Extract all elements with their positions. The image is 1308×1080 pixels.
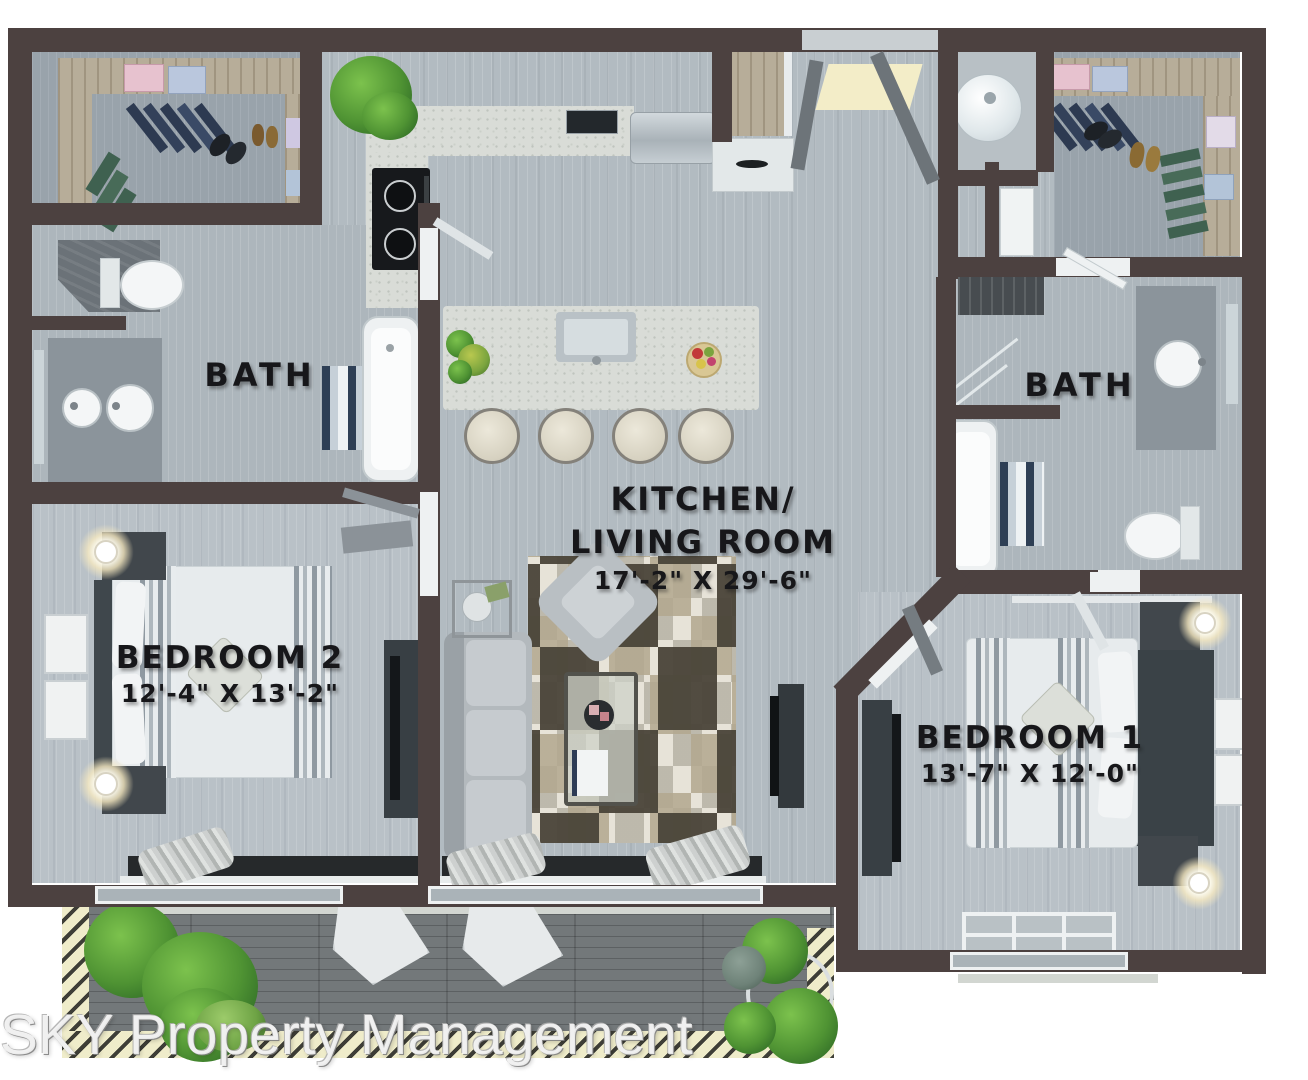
wall xyxy=(8,28,1266,52)
lamp-shade xyxy=(1194,612,1216,634)
kitchen-living-label-line1: KITCHEN/ xyxy=(553,478,853,521)
door-opening xyxy=(420,492,438,596)
toilet xyxy=(120,260,184,310)
shower-bench xyxy=(958,275,1044,315)
window xyxy=(950,952,1128,970)
wall xyxy=(8,28,32,907)
bath-right-label: BATH xyxy=(1000,366,1160,404)
stove-burner xyxy=(384,180,416,212)
kitchen-living-label: KITCHEN/ LIVING ROOM 17'-2" X 29'-6" xyxy=(553,478,853,598)
island-sink-basin xyxy=(564,319,628,355)
faucet xyxy=(1198,358,1206,366)
bath-left-label: BATH xyxy=(180,356,340,394)
faucet xyxy=(112,402,120,410)
wall xyxy=(936,277,956,577)
pantry-shelf-edge xyxy=(784,46,792,136)
shoes xyxy=(266,126,278,148)
faucet xyxy=(592,356,601,365)
tv-console xyxy=(778,684,804,808)
towel xyxy=(1000,462,1044,546)
storage-box xyxy=(168,66,206,94)
mirror xyxy=(1226,304,1238,404)
wall xyxy=(712,28,732,142)
drain xyxy=(386,344,394,352)
kitchen-living-label-line2: LIVING ROOM xyxy=(553,521,853,564)
fruit xyxy=(692,348,703,359)
window-ledge xyxy=(958,974,1158,983)
window-pane xyxy=(1016,916,1062,933)
storage-box xyxy=(1206,116,1236,148)
pantry-shelf xyxy=(724,46,784,136)
gray-plant xyxy=(722,946,766,990)
cabinet-handle xyxy=(736,160,768,168)
storage-box xyxy=(1092,66,1128,92)
bar-stool xyxy=(678,408,734,464)
range-hood xyxy=(566,110,618,134)
wall xyxy=(950,405,1060,419)
mirror xyxy=(34,350,44,464)
lamp-shade xyxy=(94,772,118,796)
bedroom2-label: BEDROOM 2 12'-4" X 13'-2" xyxy=(80,638,380,711)
bar-stool xyxy=(538,408,594,464)
fruit xyxy=(707,357,716,366)
tray-item xyxy=(589,705,599,715)
bedroom1-label: BEDROOM 1 13'-7" X 12'-0" xyxy=(880,718,1180,791)
tray-item xyxy=(600,712,609,721)
lamp-shade xyxy=(94,540,118,564)
bedroom1-name: BEDROOM 1 xyxy=(880,718,1180,758)
sink xyxy=(62,388,102,428)
hanging-plant xyxy=(724,1002,776,1054)
toilet-tank xyxy=(100,258,120,308)
wall xyxy=(1036,28,1054,172)
book xyxy=(572,750,608,796)
bedroom1-dims: 13'-7" X 12'-0" xyxy=(880,758,1180,791)
wall xyxy=(300,28,322,225)
bar-stool xyxy=(612,408,668,464)
sofa-cushion xyxy=(466,710,526,776)
potted-plant xyxy=(362,92,418,140)
wall xyxy=(1242,28,1266,974)
door-opening xyxy=(802,30,938,50)
door-opening xyxy=(420,228,438,300)
wall xyxy=(8,316,126,330)
tv-screen xyxy=(770,696,779,796)
sofa-back xyxy=(444,632,464,860)
wall xyxy=(938,28,958,279)
floor-plan: BATH BATH KITCHEN/ LIVING ROOM 17'-2" X … xyxy=(0,0,1308,1080)
door-opening xyxy=(1098,570,1140,592)
watermark: SKY Property Management xyxy=(0,1002,693,1068)
bedroom2-dims: 12'-4" X 13'-2" xyxy=(80,678,380,711)
stove-burner xyxy=(384,228,416,260)
fruit xyxy=(704,347,714,357)
sink xyxy=(1154,340,1202,388)
window xyxy=(428,886,763,904)
toilet-tank xyxy=(1180,506,1200,560)
storage-box xyxy=(1052,64,1090,90)
door xyxy=(1000,188,1034,256)
window-pane xyxy=(1066,916,1112,933)
bedroom2-name: BEDROOM 2 xyxy=(80,638,380,678)
storage-box xyxy=(1204,174,1234,200)
water-heater xyxy=(954,74,1022,142)
fruit xyxy=(696,359,706,369)
toilet xyxy=(1124,512,1186,560)
door-mat xyxy=(815,64,922,110)
storage-box xyxy=(124,64,164,92)
kitchen-living-dims: 17'-2" X 29'-6" xyxy=(553,564,853,598)
water-heater-valve xyxy=(984,92,996,104)
sofa-cushion xyxy=(466,640,526,706)
refrigerator xyxy=(630,112,716,164)
bathtub-basin xyxy=(952,432,990,566)
wall xyxy=(8,203,322,225)
wall xyxy=(985,162,999,273)
counter-plant xyxy=(448,360,472,384)
wall xyxy=(836,688,858,907)
bar-stool xyxy=(464,408,520,464)
window xyxy=(95,886,343,904)
shoes xyxy=(252,124,264,146)
window-pane xyxy=(966,916,1012,933)
tv-screen xyxy=(390,656,400,800)
lamp-shade xyxy=(1188,872,1210,894)
faucet xyxy=(70,402,78,410)
